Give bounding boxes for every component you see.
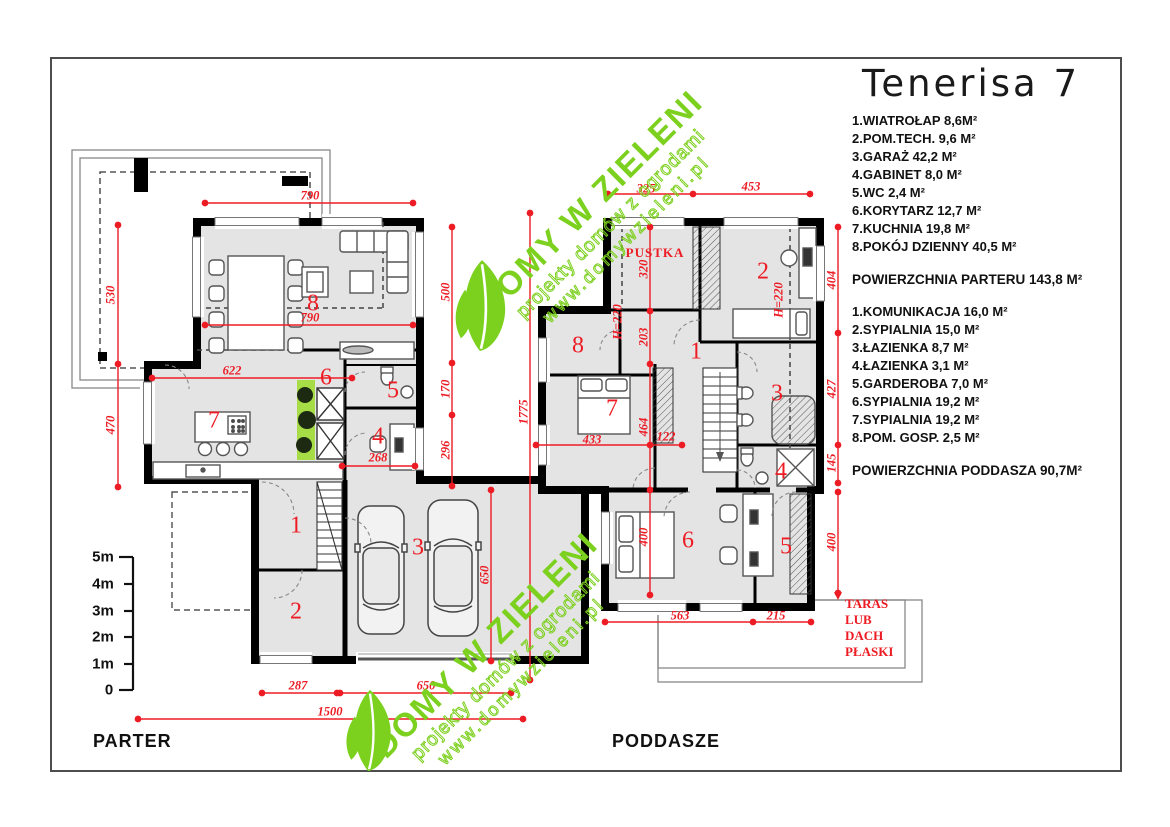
legend-item: 7.SYPIALNIA 19,2 M² xyxy=(852,411,1118,429)
legend-item: 4.ŁAZIENKA 3,1 M² xyxy=(852,357,1118,375)
legend-item: 3.GARAŻ 42,2 M² xyxy=(852,148,1118,166)
legend-item: 1.WIATROŁAP 8,6M² xyxy=(852,112,1118,130)
parter-total: POWIERZCHNIA PARTERU 143,8 M² xyxy=(852,272,1118,287)
pustka-label: PUSTKA xyxy=(626,245,685,261)
legend-item: 2.POM.TECH. 9,6 M² xyxy=(852,130,1118,148)
legend-item: 7.KUCHNIA 19,8 M² xyxy=(852,220,1118,238)
room-legend: 1.WIATROŁAP 8,6M²2.POM.TECH. 9,6 M²3.GAR… xyxy=(852,112,1118,478)
legend-item: 6.SYPIALNIA 19,2 M² xyxy=(852,393,1118,411)
poddasze-total: POWIERZCHNIA PODDASZA 90,7M² xyxy=(852,463,1118,478)
legend-item: 8.POKÓJ DZIENNY 40,5 M² xyxy=(852,238,1118,256)
legend-item: 3.ŁAZIENKA 8,7 M² xyxy=(852,339,1118,357)
legend-item: 5.WC 2,4 M² xyxy=(852,184,1118,202)
legend-item: 1.KOMUNIKACJA 16,0 M² xyxy=(852,303,1118,321)
legend-poddasze-list: 1.KOMUNIKACJA 16,0 M²2.SYPIALNIA 15,0 M²… xyxy=(852,303,1118,447)
legend-item: 4.GABINET 8,0 M² xyxy=(852,166,1118,184)
legend-item: 8.POM. GOSP. 2,5 M² xyxy=(852,429,1118,447)
legend-item: 5.GARDEROBA 7,0 M² xyxy=(852,375,1118,393)
parter-caption: PARTER xyxy=(93,731,172,752)
floorplan-sheet: Tenerisa 7 1.WIATROŁAP 8,6M²2.POM.TECH. … xyxy=(0,0,1170,827)
legend-parter-list: 1.WIATROŁAP 8,6M²2.POM.TECH. 9,6 M²3.GAR… xyxy=(852,112,1118,256)
page-title: Tenerisa 7 xyxy=(862,62,1112,105)
poddasze-caption: PODDASZE xyxy=(612,731,720,752)
legend-item: 6.KORYTARZ 12,7 M² xyxy=(852,202,1118,220)
legend-item: 2.SYPIALNIA 15,0 M² xyxy=(852,321,1118,339)
